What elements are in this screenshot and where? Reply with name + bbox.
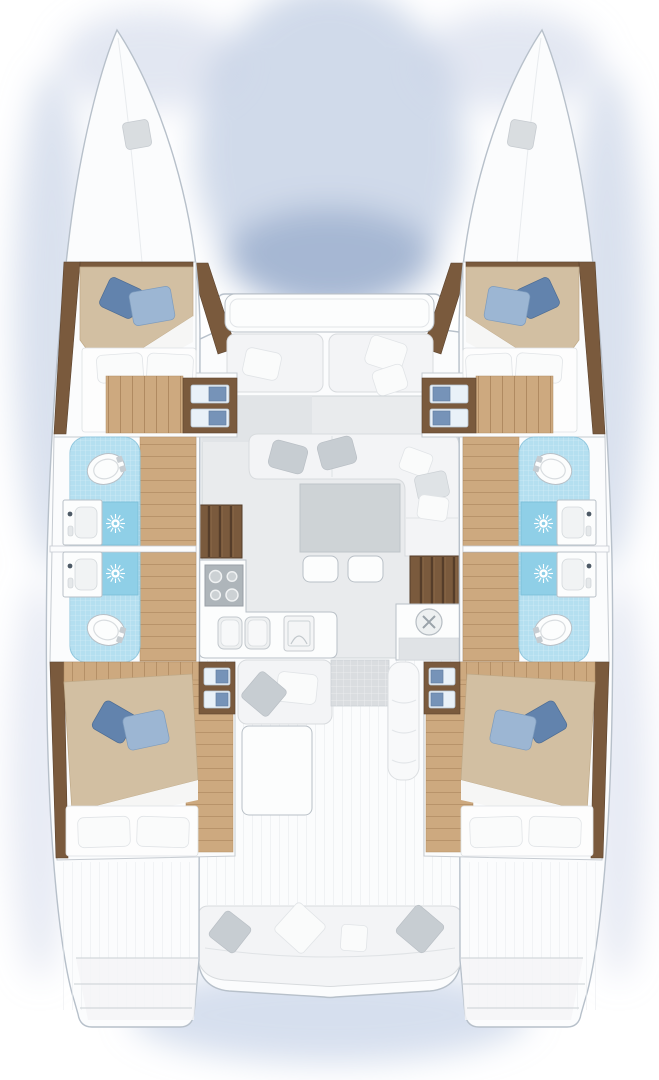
aft-bench [197, 901, 463, 986]
stool [303, 556, 338, 582]
cockpit-bench-seat [242, 726, 312, 815]
helm-seat [388, 662, 419, 780]
oven-icon [284, 616, 314, 651]
wet-bar [396, 604, 462, 660]
deck-hatch-icon [331, 660, 389, 706]
pillow [340, 924, 368, 952]
catamaran-floor-plan [0, 0, 659, 1080]
foredeck-bench [227, 334, 433, 397]
boat-floor-plan-canvas [0, 0, 659, 1080]
stool [348, 556, 383, 582]
saloon-table [300, 484, 400, 552]
cooktop-burner-icon [205, 565, 243, 606]
foredeck-coaming [225, 294, 434, 332]
cushion [416, 494, 449, 522]
